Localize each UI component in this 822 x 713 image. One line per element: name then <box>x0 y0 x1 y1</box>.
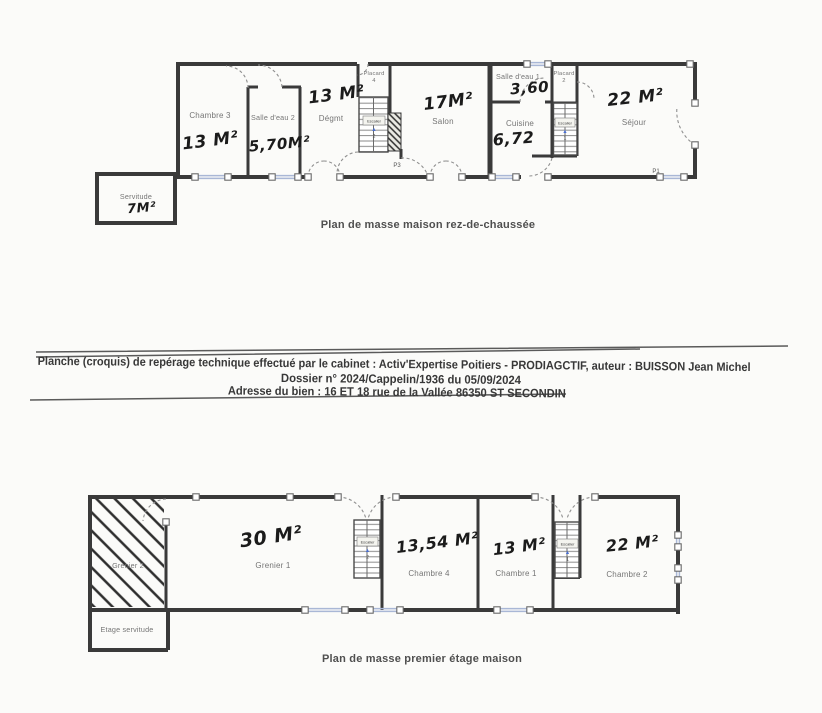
room-label-etage-servitude: Etage servitude <box>101 625 154 634</box>
gf-stair-right-number: 1 <box>564 136 567 142</box>
scanned-plan-page: Escalier ▲ 2 Escalier ▲ 1 <box>0 0 822 713</box>
handwritten-area-salle-eau2: 5,70M² <box>248 132 311 155</box>
stair-up-arrow-icon: ▲ <box>371 127 376 133</box>
ground-floor-caption: Plan de masse maison rez-de-chaussée <box>321 219 535 231</box>
ground-floor-plan: Escalier ▲ 2 Escalier ▲ 1 <box>97 61 698 231</box>
room-label-grenier1: Grenier 1 <box>255 561 290 570</box>
handwritten-area-sejour: 22 M² <box>606 85 664 111</box>
stair-up-arrow-icon: ▲ <box>565 550 570 556</box>
handwritten-area-chambre2: 22 M² <box>605 531 660 555</box>
handwritten-area-salon: 17M² <box>422 89 474 115</box>
handwritten-area-chambre1: 13 M² <box>492 534 547 559</box>
plan-canvas: Escalier ▲ 2 Escalier ▲ 1 <box>0 0 822 713</box>
report-block: Planche (croquis) de repérage technique … <box>30 346 788 402</box>
room-label-salon: Salon <box>432 117 453 126</box>
ff-grenier2-hatching <box>92 499 164 607</box>
room-label-cuisine: Cuisine <box>506 119 534 128</box>
room-label-degmt: Dégmt <box>319 114 344 123</box>
first-floor-plan: Escalier ▲ 2 Escalier ▲ 1 <box>88 494 681 665</box>
first-floor-caption: Plan de masse premier étage maison <box>322 653 522 665</box>
room-label-chambre3: Chambre 3 <box>189 111 231 120</box>
door-label-p1: P1 <box>652 169 660 175</box>
gf-hatched-wall-block <box>388 113 401 151</box>
handwritten-area-degmt: 13 M² <box>307 82 366 109</box>
ff-stair-right-label: Escalier <box>561 542 576 547</box>
room-label-sejour: Séjour <box>622 118 646 127</box>
ff-outer-walls <box>88 495 680 652</box>
room-label-chambre1: Chambre 1 <box>495 569 537 578</box>
report-line-adresse: Adresse du bien : 16 ET 18 rue de la Val… <box>228 383 566 400</box>
handwritten-area-cuisine: 6,72 <box>492 128 535 150</box>
room-label-chambre2: Chambre 2 <box>606 570 648 579</box>
ff-stair-right: Escalier ▲ 1 <box>555 522 579 578</box>
ff-stair-left: Escalier ▲ 2 <box>354 520 380 578</box>
stair-up-arrow-icon: ▲ <box>562 129 567 135</box>
gf-stair-left-number: 2 <box>373 134 376 140</box>
ff-door-swings <box>143 497 595 521</box>
door-label-p3: P3 <box>393 163 401 169</box>
room-label-placard2-num: 2 <box>562 78 565 84</box>
room-label-chambre4: Chambre 4 <box>408 569 450 578</box>
gf-stair-right: Escalier ▲ 1 <box>554 103 578 155</box>
ff-stair-left-label: Escalier <box>361 540 376 545</box>
handwritten-area-grenier1: 30 M² <box>239 522 304 553</box>
gf-stair-right-label: Escalier <box>558 121 573 126</box>
ff-stair-right-number: 1 <box>566 557 569 563</box>
gf-stair-left-label: Escalier <box>367 119 382 124</box>
gf-stair-left: Escalier ▲ 2 <box>359 97 388 152</box>
handwritten-area-servitude: 7M² <box>127 200 157 217</box>
stair-up-arrow-icon: ▲ <box>365 548 370 554</box>
room-label-placard2: Placard <box>553 71 574 77</box>
handwritten-area-salle-eau1: 3,60 <box>510 78 550 99</box>
ff-stair-left-number: 2 <box>366 555 369 561</box>
handwritten-area-chambre4: 13,54 M² <box>395 528 480 557</box>
room-label-placard4: Placard <box>363 71 384 77</box>
room-label-grenier2: Grenier 2 <box>112 561 144 570</box>
handwritten-area-chambre3: 13 M² <box>181 128 240 155</box>
room-label-placard4-num: 4 <box>372 78 376 84</box>
room-label-salle-eau2: Salle d'eau 2 <box>251 113 295 122</box>
